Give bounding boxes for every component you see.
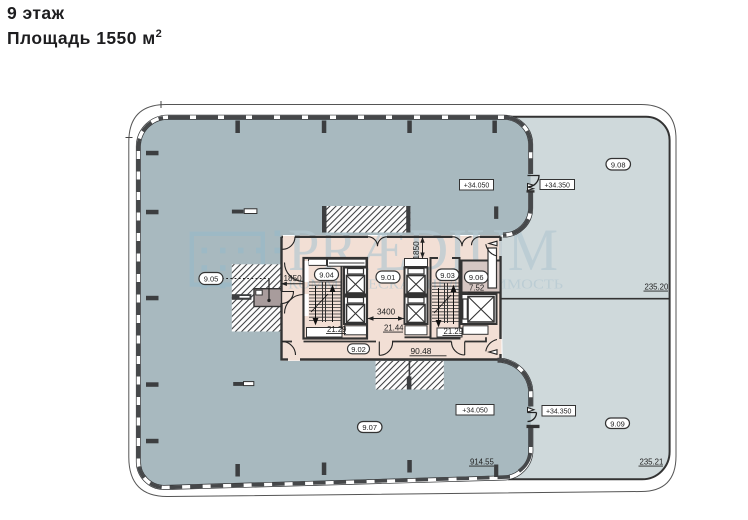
svg-text:+34.350: +34.350 [546, 409, 572, 416]
svg-text:9.04: 9.04 [319, 271, 334, 280]
svg-text:21.29: 21.29 [444, 327, 464, 336]
svg-text:+34.350: +34.350 [544, 182, 570, 189]
svg-text:+34.050: +34.050 [464, 183, 490, 190]
svg-text:9.02: 9.02 [351, 345, 366, 354]
svg-text:235.20: 235.20 [645, 283, 670, 292]
svg-text:90.48: 90.48 [411, 346, 432, 356]
svg-text:9.05: 9.05 [204, 275, 219, 284]
svg-text:21.44: 21.44 [384, 324, 404, 333]
svg-text:1850: 1850 [412, 241, 421, 260]
svg-text:9.07: 9.07 [362, 423, 377, 432]
svg-text:9.03: 9.03 [440, 271, 455, 280]
svg-text:9.08: 9.08 [611, 160, 626, 169]
svg-text:+34.050: +34.050 [462, 408, 488, 415]
svg-text:9.01: 9.01 [381, 273, 396, 282]
svg-text:235.21: 235.21 [640, 458, 664, 467]
svg-text:9.09: 9.09 [610, 419, 625, 428]
svg-text:21.29: 21.29 [327, 325, 347, 334]
svg-text:914.55: 914.55 [470, 458, 495, 467]
svg-text:9.06: 9.06 [469, 273, 484, 282]
svg-text:1850: 1850 [284, 274, 303, 283]
svg-text:7.52: 7.52 [469, 284, 484, 293]
svg-text:3400: 3400 [377, 308, 396, 317]
